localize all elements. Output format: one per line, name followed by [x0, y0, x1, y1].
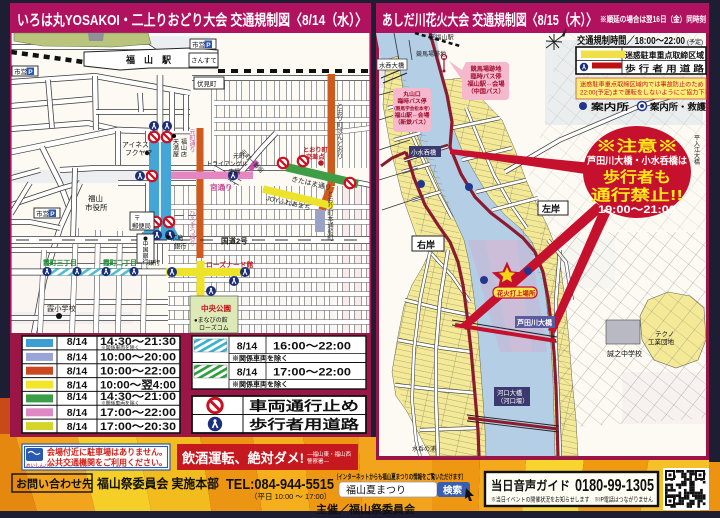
svg-text:案内所・救護: 案内所・救護 — [649, 101, 707, 112]
svg-text:市営: 市営 — [14, 67, 27, 76]
svg-text:主催／福山祭委員会: 主催／福山祭委員会 — [316, 502, 416, 516]
svg-text:伏見町: 伏見町 — [197, 79, 217, 88]
svg-text:トライアングル: トライアングル — [206, 160, 248, 168]
svg-text:ひろまつ通り: ひろまつ通り — [189, 211, 195, 248]
svg-text:17:00～22:00: 17:00～22:00 — [273, 367, 351, 379]
svg-text:小水呑橋: 小水呑橋 — [411, 148, 437, 157]
svg-text:TEL:084-944-5515: TEL:084-944-5515 — [226, 477, 334, 493]
svg-text:P: P — [28, 69, 33, 76]
svg-text:ローズコム: ローズコム — [199, 324, 229, 332]
svg-text:（新鉄バス）: （新鉄バス） — [395, 118, 430, 126]
svg-text:広島: 広島 — [171, 233, 184, 242]
svg-text:至福山駅: 至福山駅 — [429, 34, 454, 42]
svg-text:銀行: 銀行 — [174, 241, 187, 250]
svg-text:丸山口: 丸山口 — [402, 90, 421, 98]
svg-text:とおり町本通船町: とおり町本通船町 — [327, 190, 334, 242]
svg-text:元町通り: 元町通り — [189, 129, 195, 154]
svg-text:（平日 10:00 ～ 17:00）: （平日 10:00 ～ 17:00） — [250, 492, 331, 501]
svg-text:8/14: 8/14 — [67, 421, 88, 433]
svg-text:霞小学校: 霞小学校 — [47, 304, 76, 313]
svg-text:19:00～21:00: 19:00～21:00 — [598, 204, 676, 216]
svg-text:―福山東・福山西: ―福山東・福山西 — [307, 450, 352, 458]
svg-text:霞町三丁目: 霞町三丁目 — [43, 258, 77, 267]
svg-text:交通規制時間／18:00～22:00: 交通規制時間／18:00～22:00 — [577, 34, 685, 47]
svg-text:公共交通機関をご利用ください。: 公共交通機関をご利用ください。 — [47, 458, 167, 468]
svg-text:さんすて: さんすて — [191, 57, 217, 65]
svg-text:芦田川大橋: 芦田川大橋 — [517, 318, 553, 327]
svg-text:福山祭委員会 実施本部: 福山祭委員会 実施本部 — [96, 476, 219, 491]
svg-text:8/14: 8/14 — [67, 407, 88, 419]
svg-text:17:00～20:30: 17:00～20:30 — [100, 421, 176, 433]
svg-text:8/14: 8/14 — [67, 391, 88, 403]
svg-text:福山: 福山 — [88, 193, 103, 203]
svg-text:水呑大橋: 水呑大橋 — [379, 61, 405, 70]
svg-text:国道2号: 国道2号 — [221, 236, 248, 246]
svg-text:市営: 市営 — [192, 40, 205, 49]
svg-text:河口大橋: 河口大橋 — [497, 388, 523, 397]
svg-text:歩行者も: 歩行者も — [603, 168, 671, 186]
svg-text:臨時バス停: 臨時バス停 — [471, 73, 503, 81]
svg-text:福山駅⇔会場: 福山駅⇔会場 — [466, 80, 505, 88]
svg-text:福山店: 福山店 — [181, 138, 187, 158]
svg-text:元町: 元町 — [233, 153, 245, 160]
svg-text:宮通り: 宮通り — [210, 182, 233, 192]
svg-text:平入江大橋: 平入江大橋 — [694, 135, 700, 166]
svg-text:●まなびの館: ●まなびの館 — [194, 316, 228, 324]
svg-text:10:00～20:00: 10:00～20:00 — [100, 352, 176, 364]
svg-text:とおり町: とおり町 — [303, 146, 329, 154]
svg-text:（河口堰）: （河口堰） — [497, 396, 528, 405]
svg-text:福山駅⇔会場: 福山駅⇔会場 — [394, 111, 430, 119]
svg-text:あしだ川花火大会 交通規制図〈8/15（木）〉: あしだ川花火大会 交通規制図〈8/15（木）〉 — [382, 11, 597, 29]
svg-text:天満屋: 天満屋 — [173, 139, 179, 158]
svg-text:いろは丸YOSAKOI・二上りおどり大会 交通規制図〈8/1: いろは丸YOSAKOI・二上りおどり大会 交通規制図〈8/14（水）〉 — [17, 11, 367, 29]
svg-text:競馬場跡地: 競馬場跡地 — [471, 65, 503, 73]
svg-text:誠之中学校: 誠之中学校 — [607, 349, 642, 358]
svg-text:アイネス: アイネス — [122, 141, 149, 149]
svg-text:車両通行止め: 車両通行止め — [249, 399, 359, 414]
svg-text:8/14: 8/14 — [67, 366, 88, 378]
svg-text:8/14: 8/14 — [67, 352, 88, 364]
svg-text:通行禁止!!: 通行禁止!! — [591, 186, 683, 204]
svg-text:警察署―: 警察署― — [307, 457, 330, 465]
svg-text:※関係車両を除く: ※関係車両を除く — [232, 380, 288, 389]
svg-text:（中国バス）: （中国バス） — [467, 88, 504, 96]
svg-text:郵便局: 郵便局 — [132, 222, 151, 230]
svg-text:当日音声ガイド: 当日音声ガイド — [491, 478, 570, 493]
svg-text:とおり町ほんどおり: とおり町ほんどおり — [337, 102, 344, 160]
svg-text:10:00～22:00: 10:00～22:00 — [100, 366, 176, 378]
svg-text:17:00～22:00: 17:00～22:00 — [100, 407, 176, 419]
svg-text:工業団地: 工業団地 — [648, 337, 675, 346]
svg-text:ローズナード館: ローズナード館 — [206, 260, 253, 269]
svg-text:水呑の浦: 水呑の浦 — [412, 445, 436, 453]
svg-text:P: P — [50, 211, 55, 218]
svg-text:10:00～翌4:00: 10:00～翌4:00 — [100, 378, 176, 391]
svg-text:銀行: 銀行 — [148, 259, 160, 267]
svg-text:〔インターネットからも福山夏まつりの情報をご覧いただけます〕: 〔インターネットからも福山夏まつりの情報をご覧いただけます〕 — [334, 472, 466, 481]
svg-text:22:00(予定)まで運転をしないようにご協力下さい。: 22:00(予定)まで運転をしないようにご協力下さい。 — [580, 89, 720, 97]
svg-text:検索: 検索 — [443, 485, 463, 497]
svg-text:16:00～22:00: 16:00～22:00 — [273, 341, 351, 353]
svg-text:右岸: 右岸 — [416, 239, 435, 250]
svg-text:テクノ: テクノ — [655, 330, 674, 338]
svg-text:※注意※: ※注意※ — [596, 137, 678, 155]
svg-text:迷惑駐車重点取締区域: 迷惑駐車重点取締区域 — [624, 50, 704, 60]
svg-text:8/14: 8/14 — [67, 379, 88, 391]
svg-text:臨時バス停: 臨時バス停 — [398, 97, 427, 105]
svg-text:※当日イベントの開催状況をお知らせします ※IP電話はつなが: ※当日イベントの開催状況をお知らせします ※IP電話はつながりません — [491, 495, 653, 504]
svg-text:※関係車両を除く: ※関係車両を除く — [232, 354, 288, 363]
svg-text:交差点: 交差点 — [306, 153, 325, 161]
svg-text:8/14: 8/14 — [237, 367, 258, 379]
svg-text:飲酒運転、絶対ダメ!: 飲酒運転、絶対ダメ! — [181, 450, 304, 466]
svg-text:歩 行 者 用 道 路: 歩 行 者 用 道 路 — [625, 64, 705, 74]
svg-text:0180-99-1305: 0180-99-1305 — [575, 475, 654, 495]
svg-text:※順延の場合は翌16日（金）同時刻: ※順延の場合は翌16日（金）同時刻 — [600, 14, 706, 24]
svg-text:福山駅: 福山駅 — [125, 54, 180, 65]
svg-text:芦田川大橋・小水呑橋は: 芦田川大橋・小水呑橋は — [587, 155, 687, 167]
svg-text:花火打上場所: 花火打上場所 — [497, 289, 536, 298]
svg-text:会場付近に駐車場はありません。: 会場付近に駐車場はありません。 — [46, 447, 167, 457]
svg-text:(予定): (予定) — [687, 38, 703, 46]
svg-text:福山夏まつり: 福山夏まつり — [346, 484, 406, 497]
svg-text:お問い合わせ先: お問い合わせ先 — [16, 477, 93, 491]
svg-text:（競馬学会松本考）: （競馬学会松本考） — [391, 105, 432, 112]
svg-text:8/14: 8/14 — [67, 336, 88, 348]
svg-text:歩行者用道路: 歩行者用道路 — [249, 417, 360, 432]
svg-text:市営: 市営 — [36, 209, 49, 218]
svg-text:霞町二丁目: 霞町二丁目 — [103, 258, 137, 267]
svg-text:市役所: 市役所 — [85, 202, 108, 212]
svg-text:広場: 広場 — [228, 168, 240, 176]
svg-text:迷惑駐車重点取締区域内では事故防止のため: 迷惑駐車重点取締区域内では事故防止のため — [580, 81, 704, 89]
svg-text:P: P — [206, 42, 211, 49]
svg-text:〒: 〒 — [134, 215, 140, 222]
svg-text:8/14: 8/14 — [237, 341, 258, 353]
svg-text:中央公園: 中央公園 — [201, 303, 231, 313]
svg-text:左岸: 左岸 — [541, 203, 560, 214]
svg-text:案内所: 案内所 — [590, 101, 629, 112]
